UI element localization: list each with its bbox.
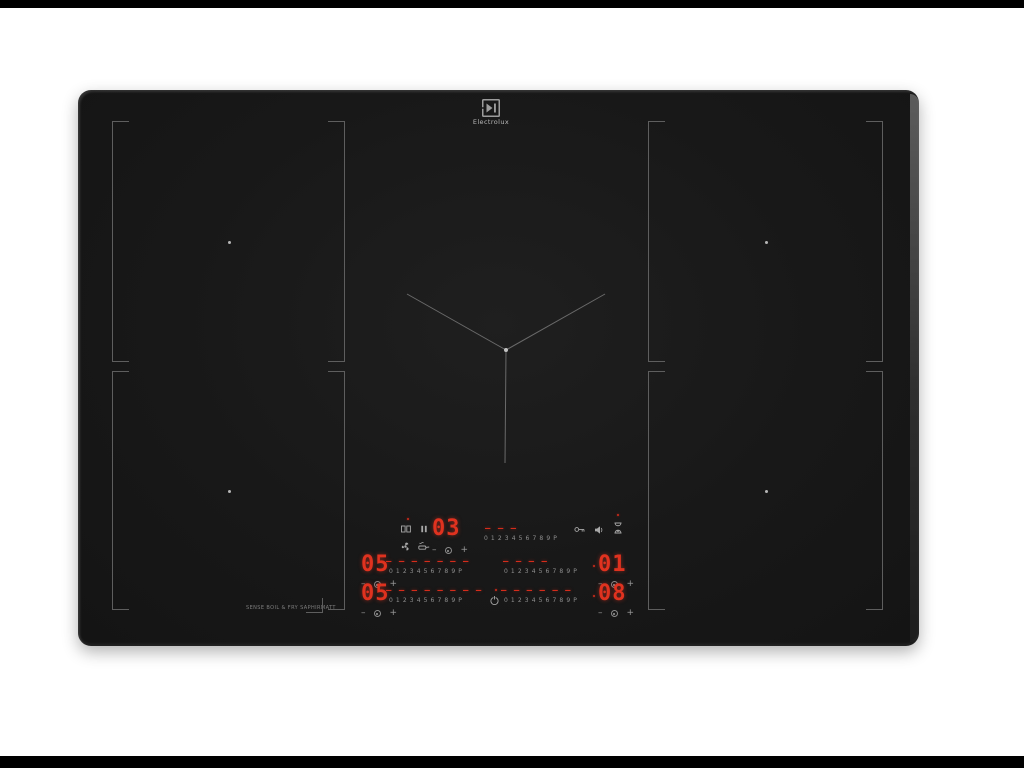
zone-bracket-right — [328, 121, 345, 362]
zone-bracket-left — [648, 121, 665, 362]
cooking-zone-right-top — [648, 121, 883, 362]
timer-ok-dot-icon[interactable] — [445, 547, 452, 554]
zone-right-bottom-slider[interactable]: 0 1 2 3 4 5 6 7 8 9 P — [504, 598, 577, 604]
zone-right-bottom-dashes: – – – – – – — [501, 587, 572, 596]
hob2hood-icon[interactable] — [400, 541, 411, 552]
timer-slider-scale[interactable]: 0 1 2 3 4 5 6 7 8 9 P — [484, 536, 557, 542]
timer-icon[interactable] — [613, 522, 623, 534]
cooking-zone-right-bottom — [648, 371, 883, 610]
zone-bracket-left — [112, 371, 129, 610]
ok-dot-icon[interactable] — [374, 610, 381, 617]
cooking-zone-left-bottom — [112, 371, 345, 610]
zone-indicator-dot — [593, 565, 595, 567]
timer-active-dot — [617, 514, 619, 516]
print-corner-mark — [306, 598, 323, 613]
zone-right-mid-display: 01 — [598, 554, 627, 576]
zone-left-bottom-stepper: – + — [361, 609, 397, 618]
zone-bracket-left — [112, 121, 129, 362]
minus-button[interactable]: – — [361, 609, 366, 618]
zone-bracket-left — [648, 371, 665, 610]
zone-center-dot — [228, 241, 231, 244]
timer-level-dashes: – – – — [485, 525, 517, 534]
plus-button[interactable]: + — [626, 609, 634, 618]
zone-center-dot — [228, 490, 231, 493]
zone-bracket-right — [328, 371, 345, 610]
power-icon[interactable] — [489, 595, 500, 606]
plus-button[interactable]: + — [389, 609, 397, 618]
brand-name: Electrolux — [461, 118, 521, 126]
zone-right-bottom-stepper: – + — [598, 609, 634, 618]
zone-left-mid-slider[interactable]: 0 1 2 3 4 5 6 7 8 9 P — [389, 569, 462, 575]
zone-right-mid-slider[interactable]: 0 1 2 3 4 5 6 7 8 9 P — [504, 569, 577, 575]
bridge-icon[interactable] — [401, 524, 411, 534]
zone-right-mid-dashes: – – – – — [503, 558, 548, 567]
sound-icon[interactable] — [594, 525, 604, 535]
zone-left-bottom-dashes: – – – – – – – – — [386, 587, 482, 596]
cooking-zone-left-top — [112, 121, 345, 362]
induction-hob: Electrolux — [78, 90, 919, 646]
zone-right-bottom-display: 08 — [598, 583, 627, 605]
timer-stepper: – + — [432, 546, 468, 555]
key-lock-icon[interactable] — [574, 525, 585, 534]
zone-left-mid-dashes: – – – – – – – — [386, 558, 469, 567]
sense-fry-icon[interactable] — [418, 541, 430, 552]
letterbox-bottom — [0, 756, 1024, 768]
product-photo: Electrolux — [0, 0, 1024, 768]
zone-center-dot — [765, 241, 768, 244]
ok-dot-icon[interactable] — [611, 610, 618, 617]
electrolux-logo-icon — [482, 99, 500, 117]
letterbox-top — [0, 0, 1024, 8]
center-zone-mark — [395, 288, 617, 470]
function-indicator-dot — [407, 518, 409, 520]
plus-button[interactable]: + — [626, 580, 634, 589]
power-indicator-dot — [495, 589, 497, 591]
zone-bracket-right — [866, 371, 883, 610]
zone-center-dot — [765, 490, 768, 493]
zone-left-bottom-slider[interactable]: 0 1 2 3 4 5 6 7 8 9 P — [389, 598, 462, 604]
hob-side-edge — [910, 94, 919, 642]
minus-button[interactable]: – — [598, 609, 603, 618]
pause-icon[interactable] — [419, 524, 429, 534]
timer-plus-button[interactable]: + — [460, 546, 468, 555]
zone-bracket-right — [866, 121, 883, 362]
timer-minus-button[interactable]: – — [432, 546, 437, 555]
zone-indicator-dot — [593, 595, 595, 597]
timer-display: 03 — [432, 518, 461, 540]
